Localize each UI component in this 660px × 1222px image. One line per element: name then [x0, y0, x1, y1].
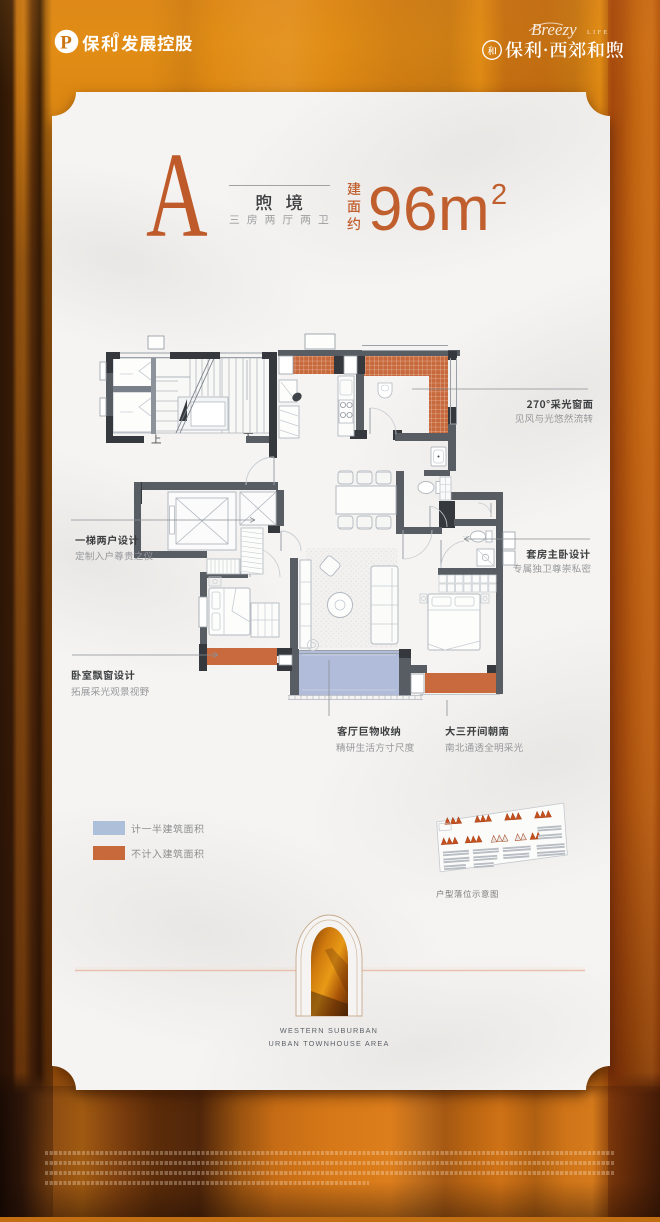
svg-text:URBAN TOWNHOUSE AREA: URBAN TOWNHOUSE AREA — [268, 1039, 389, 1048]
svg-text:WESTERN SUBURBAN: WESTERN SUBURBAN — [280, 1026, 378, 1035]
svg-text:A: A — [146, 127, 208, 263]
svg-text:2: 2 — [491, 179, 507, 211]
svg-text:96m: 96m — [368, 175, 490, 244]
